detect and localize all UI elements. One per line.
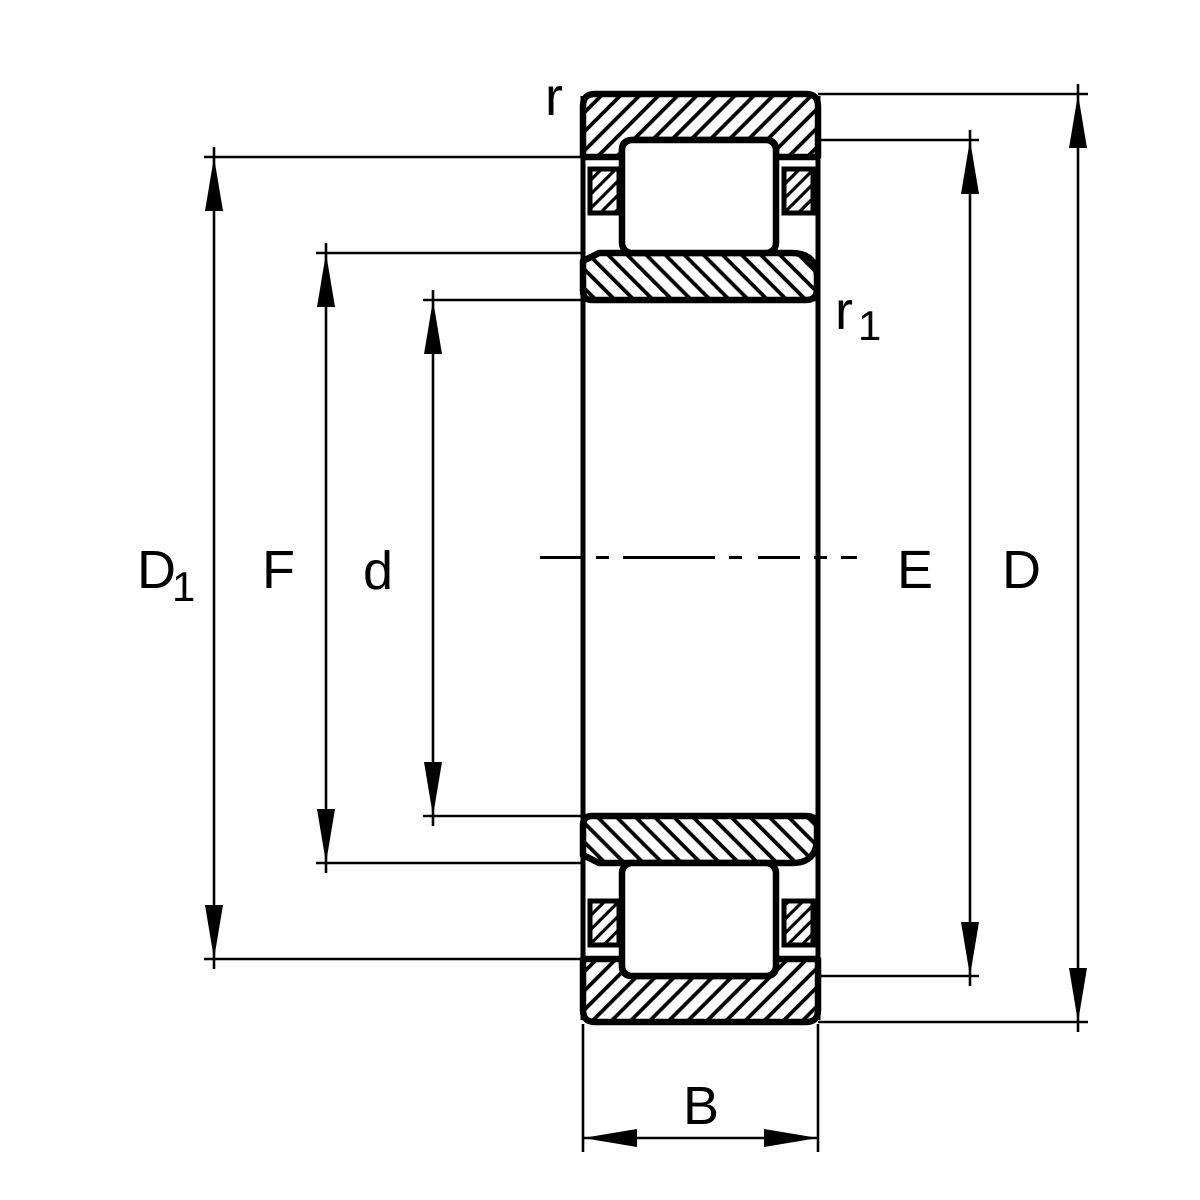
label-D1: D bbox=[137, 540, 176, 600]
arrowhead-D1-up bbox=[205, 157, 223, 211]
bearing-dimension-drawing: D 1 F d E D bbox=[0, 0, 1200, 1200]
label-d: d bbox=[363, 541, 393, 601]
cage-bar-bottom-left bbox=[590, 901, 619, 945]
annotation-r: r bbox=[545, 67, 563, 127]
cage-bar-top-left bbox=[590, 169, 619, 213]
arrowhead-D1-down bbox=[205, 905, 223, 959]
dimension-D: D bbox=[818, 84, 1088, 1032]
arrowhead-E-up bbox=[961, 140, 979, 194]
label-B: B bbox=[683, 1076, 719, 1136]
label-r1-subscript: 1 bbox=[858, 302, 881, 349]
label-D1-subscript: 1 bbox=[172, 563, 195, 610]
arrowhead-B-left bbox=[583, 1129, 637, 1147]
cage-bar-top-right bbox=[784, 169, 813, 213]
roller-top bbox=[622, 140, 776, 253]
label-F: F bbox=[262, 540, 295, 600]
arrowhead-F-up bbox=[317, 253, 335, 307]
label-r: r bbox=[545, 67, 563, 127]
bearing-cross-section bbox=[540, 94, 857, 1022]
label-D: D bbox=[1002, 540, 1041, 600]
dimension-d: d bbox=[363, 290, 818, 826]
arrowhead-d-up bbox=[424, 300, 442, 354]
dimension-B: B bbox=[583, 1024, 818, 1152]
arrowhead-D-down bbox=[1069, 968, 1087, 1022]
dimension-D1: D 1 bbox=[137, 147, 583, 969]
inner-ring-bottom-section bbox=[583, 816, 817, 863]
label-r1: r bbox=[835, 281, 853, 341]
cage-bar-bottom-right bbox=[784, 901, 813, 945]
arrowhead-F-down bbox=[317, 809, 335, 863]
arrowhead-d-down bbox=[424, 762, 442, 816]
annotation-r1: r 1 bbox=[835, 281, 881, 349]
arrowhead-D-up bbox=[1069, 94, 1087, 148]
arrowhead-B-right bbox=[764, 1129, 818, 1147]
label-E: E bbox=[897, 540, 933, 600]
dimension-F: F bbox=[262, 243, 583, 873]
drawing-canvas: D 1 F d E D bbox=[0, 0, 1200, 1200]
roller-bottom bbox=[622, 863, 776, 976]
arrowhead-E-down bbox=[961, 922, 979, 976]
inner-ring-top-section bbox=[583, 253, 817, 300]
